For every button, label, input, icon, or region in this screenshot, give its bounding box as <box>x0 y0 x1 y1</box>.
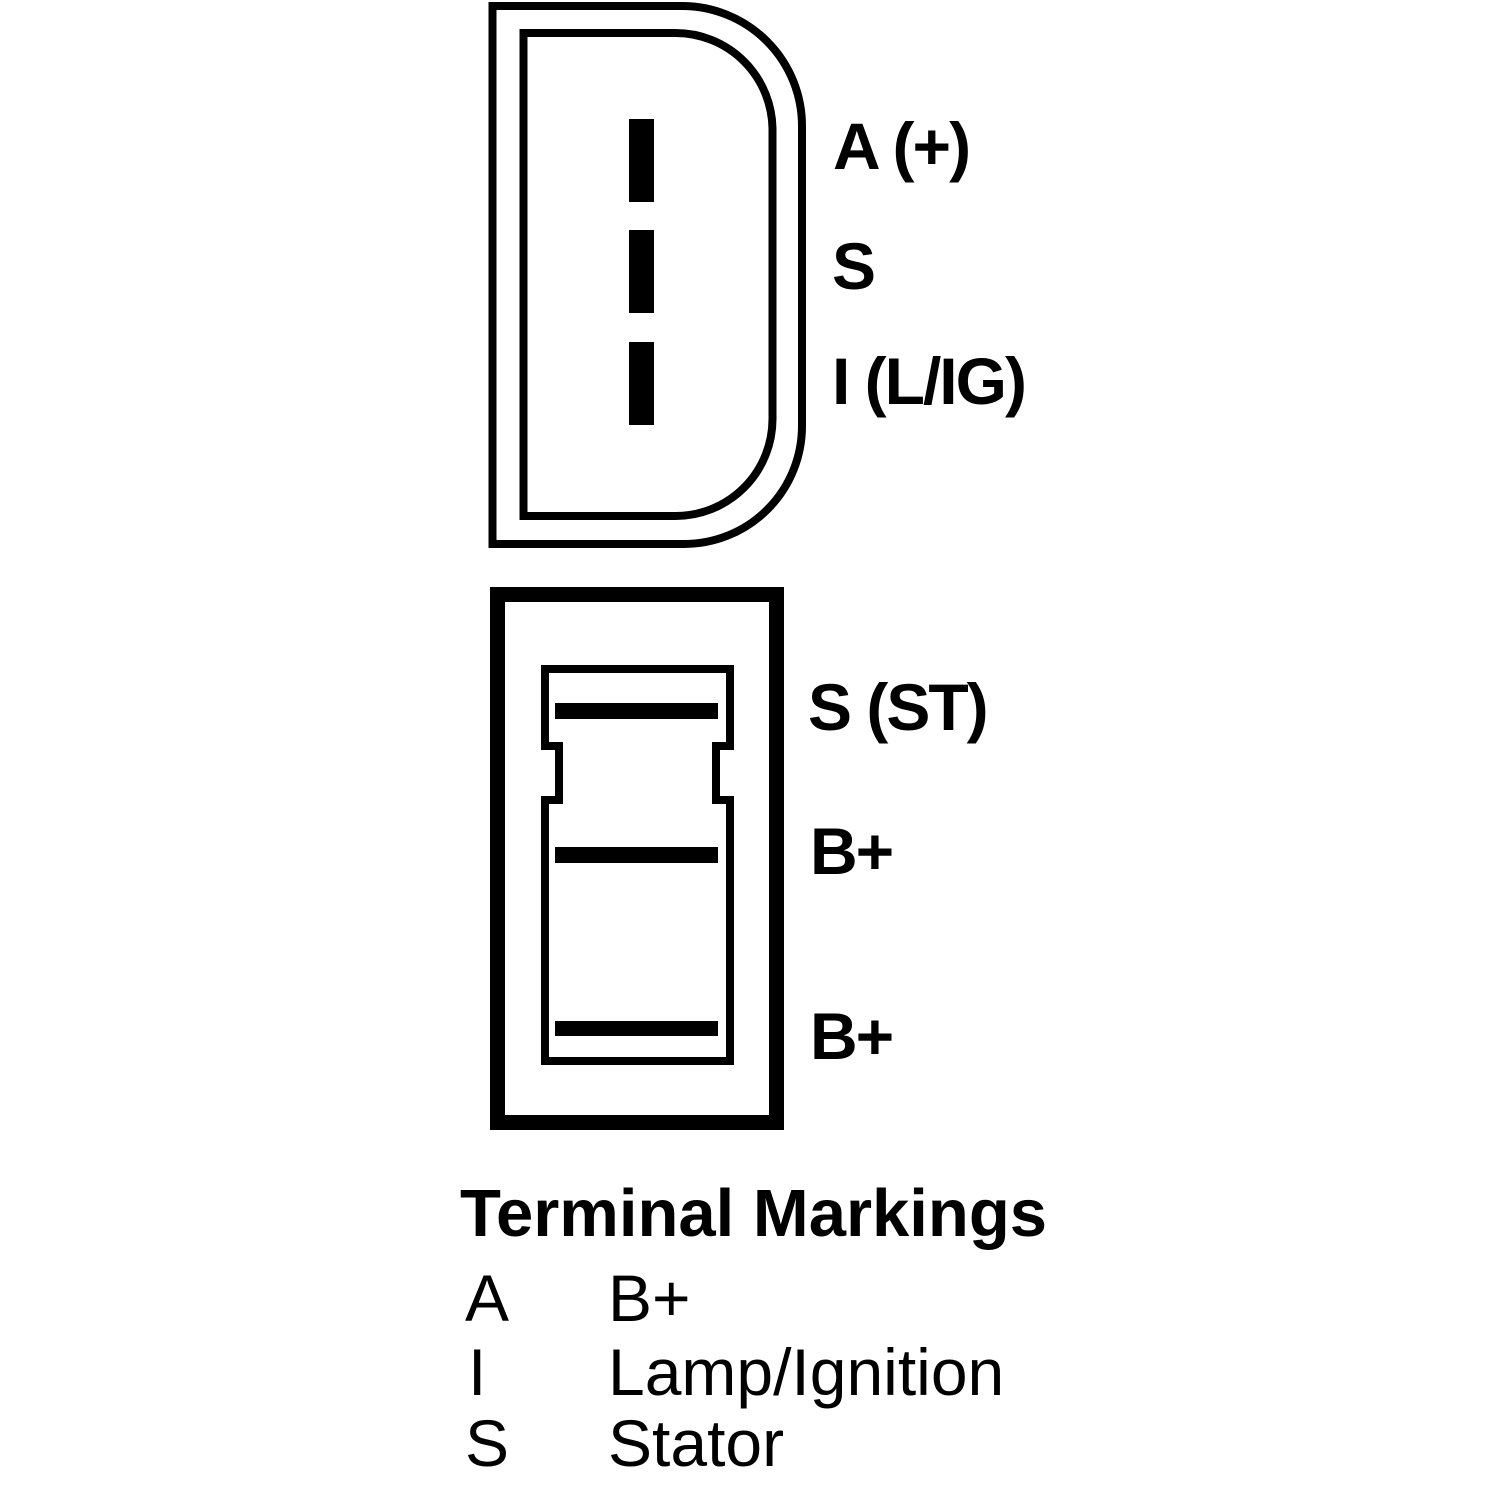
diagram-canvas: A (+) S I (L/IG) S (ST) B+ B+ Terminal M… <box>0 0 1500 1500</box>
legend-meaning-i: Lamp/Ignition <box>608 1339 1004 1405</box>
bottom-connector-terminal-b1 <box>555 847 718 863</box>
legend-meaning-a: B+ <box>608 1265 691 1331</box>
bottom-pin-label-s-st: S (ST) <box>808 674 987 740</box>
top-connector-pin-a <box>629 119 654 202</box>
bottom-connector-terminal-b2 <box>555 1021 718 1036</box>
legend-title: Terminal Markings <box>460 1180 1047 1247</box>
legend-mark-a: A <box>465 1265 509 1331</box>
top-connector-pin-i <box>629 342 654 425</box>
top-pin-label-i-lig: I (L/IG) <box>832 348 1025 414</box>
bottom-connector-inner-body <box>545 669 730 1061</box>
connector-diagram <box>0 0 1500 1500</box>
legend-mark-s: S <box>465 1410 509 1476</box>
top-pin-label-a-plus: A (+) <box>833 113 969 179</box>
bottom-pin-label-b-plus-2: B+ <box>810 1003 892 1069</box>
bottom-pin-label-b-plus-1: B+ <box>810 818 892 884</box>
top-pin-label-s: S <box>832 233 874 299</box>
legend-meaning-s: Stator <box>608 1410 784 1476</box>
bottom-connector-terminal-s <box>555 703 718 719</box>
legend-mark-i: I <box>468 1339 486 1405</box>
top-connector-pin-s <box>629 230 654 313</box>
